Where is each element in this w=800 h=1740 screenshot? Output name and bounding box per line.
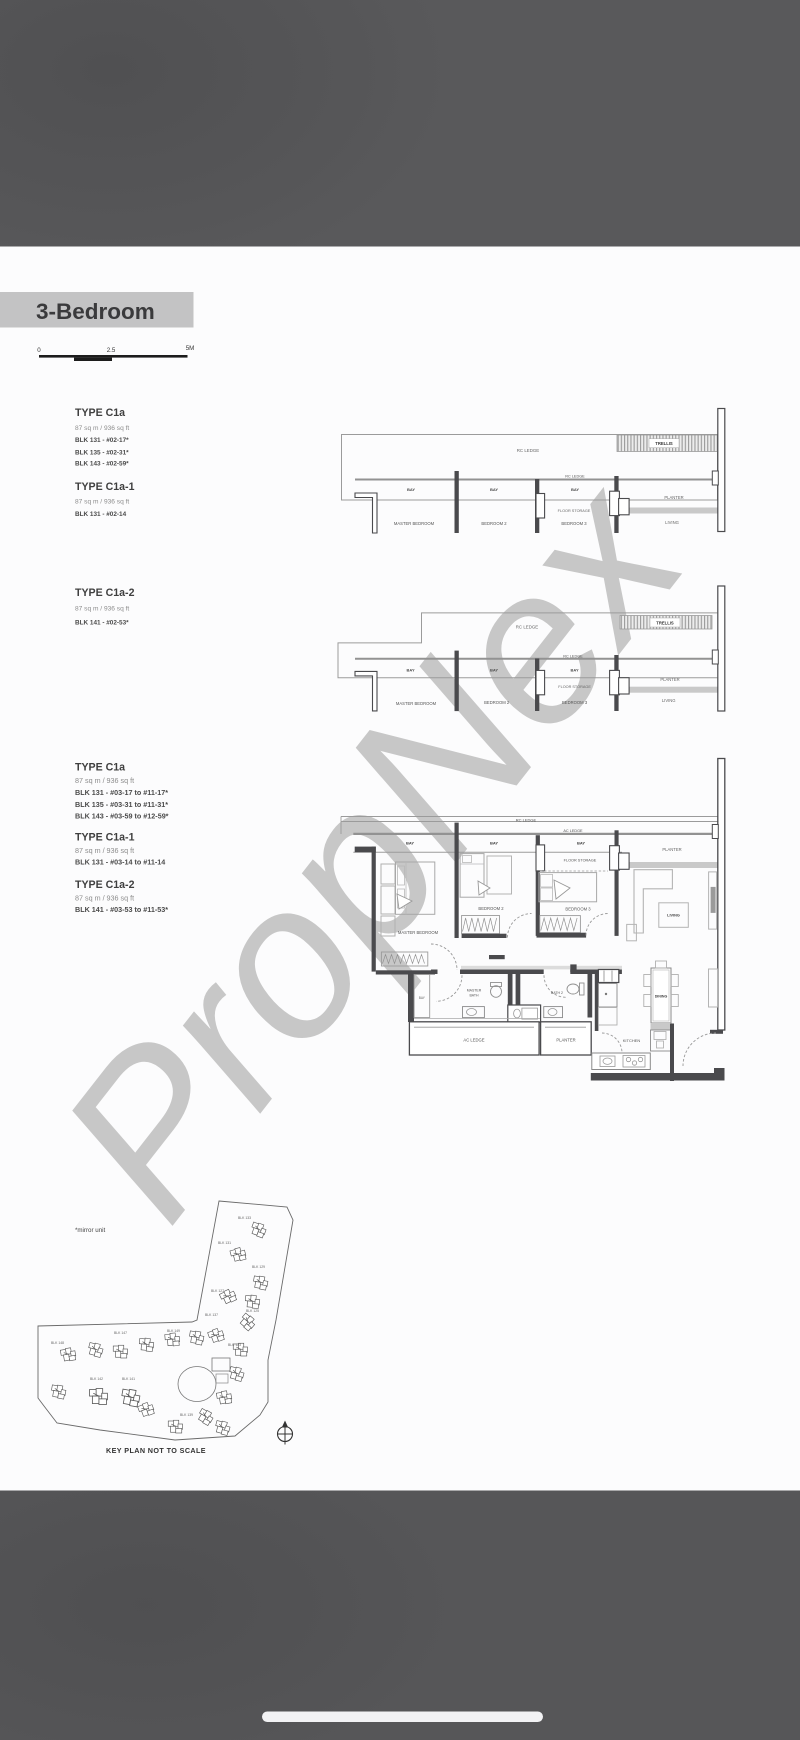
svg-text:FLOOR STORAGE: FLOOR STORAGE — [558, 685, 591, 689]
svg-text:BLK 147: BLK 147 — [114, 1331, 127, 1335]
svg-text:PLANTER: PLANTER — [664, 495, 683, 500]
svg-text:AC LEDGE: AC LEDGE — [463, 1038, 484, 1043]
svg-text:BLK 143 - #03-59 to #12-59*: BLK 143 - #03-59 to #12-59* — [75, 812, 169, 821]
svg-text:BEDROOM 3: BEDROOM 3 — [562, 700, 588, 705]
svg-text:TYPE C1a: TYPE C1a — [75, 762, 125, 774]
svg-text:BLK 131: BLK 131 — [218, 1241, 231, 1245]
svg-text:TYPE C1a-2: TYPE C1a-2 — [75, 879, 135, 891]
svg-text:BLK 141 - #03-53 to #11-53*: BLK 141 - #03-53 to #11-53* — [75, 905, 168, 914]
svg-text:RC LEDGE: RC LEDGE — [516, 817, 537, 822]
svg-text:BLK 142: BLK 142 — [90, 1377, 103, 1381]
svg-text:TRELLIS: TRELLIS — [655, 441, 673, 446]
svg-text:PLANTER: PLANTER — [662, 847, 681, 852]
svg-text:LIVING: LIVING — [665, 520, 679, 525]
svg-text:BLK 139: BLK 139 — [180, 1413, 193, 1417]
svg-text:*mirror unit: *mirror unit — [75, 1227, 106, 1234]
svg-text:BAY: BAY — [490, 487, 498, 492]
svg-text:BLK 148: BLK 148 — [51, 1341, 64, 1345]
svg-text:BLK 135 - #03-31 to #11-31*: BLK 135 - #03-31 to #11-31* — [75, 800, 168, 809]
svg-text:BATH 2: BATH 2 — [551, 991, 563, 995]
svg-text:FLOOR STORAGE: FLOOR STORAGE — [558, 509, 591, 513]
svg-text:87 sq m / 936 sq ft: 87 sq m / 936 sq ft — [75, 893, 134, 902]
svg-text:BLK 131 - #02-17*: BLK 131 - #02-17* — [75, 437, 129, 444]
svg-text:BEDROOM 2: BEDROOM 2 — [478, 906, 504, 911]
svg-text:BAY: BAY — [406, 840, 414, 845]
svg-text:87 sq m / 936 sq ft: 87 sq m / 936 sq ft — [75, 499, 129, 506]
svg-text:BAY: BAY — [490, 840, 498, 845]
svg-text:BEDROOM 2: BEDROOM 2 — [481, 521, 507, 526]
svg-text:BLK 127: BLK 127 — [211, 1289, 224, 1293]
svg-text:BAY: BAY — [571, 668, 579, 673]
svg-text:BLK 143 - #02-59*: BLK 143 - #02-59* — [75, 461, 129, 468]
svg-text:MASTER BEDROOM: MASTER BEDROOM — [396, 701, 437, 706]
svg-text:BLK 141 - #02-53*: BLK 141 - #02-53* — [75, 619, 129, 626]
svg-text:AC LEDGE: AC LEDGE — [563, 829, 583, 833]
svg-text:BEDROOM 3: BEDROOM 3 — [561, 521, 587, 526]
svg-text:TRELLIS: TRELLIS — [656, 621, 674, 626]
svg-text:TYPE C1a-1: TYPE C1a-1 — [75, 481, 135, 493]
svg-text:BEDROOM 3: BEDROOM 3 — [565, 907, 591, 912]
svg-text:MASTER BEDROOM: MASTER BEDROOM — [398, 930, 439, 935]
svg-text:TYPE C1a: TYPE C1a — [75, 407, 125, 419]
svg-text:LIVING: LIVING — [662, 698, 676, 703]
svg-text:BLK 131 - #03-14 to #11-14: BLK 131 - #03-14 to #11-14 — [75, 858, 165, 867]
svg-text:BAY: BAY — [490, 668, 498, 673]
svg-text:FLOOR STORAGE: FLOOR STORAGE — [564, 859, 597, 863]
svg-text:0: 0 — [37, 347, 41, 354]
svg-text:BLK 129: BLK 129 — [252, 1265, 265, 1269]
svg-text:3-Bedroom: 3-Bedroom — [36, 299, 155, 324]
svg-text:87 sq m / 936 sq ft: 87 sq m / 936 sq ft — [75, 606, 129, 613]
svg-text:BAY: BAY — [571, 487, 579, 492]
svg-text:MASTER BEDROOM: MASTER BEDROOM — [394, 521, 435, 526]
svg-text:PLANTER: PLANTER — [556, 1038, 575, 1043]
svg-text:BLK 123: BLK 123 — [228, 1343, 241, 1347]
svg-text:PLANTER: PLANTER — [660, 677, 679, 682]
svg-text:TYPE C1a-1: TYPE C1a-1 — [75, 832, 135, 844]
svg-text:BLK 135 - #02-31*: BLK 135 - #02-31* — [75, 449, 129, 456]
svg-text:87 sq m / 936 sq ft: 87 sq m / 936 sq ft — [75, 425, 129, 432]
svg-text:87 sq m / 936 sq ft: 87 sq m / 936 sq ft — [75, 846, 134, 855]
svg-text:RC LEDGE: RC LEDGE — [516, 625, 539, 630]
svg-text:RC LEDGE: RC LEDGE — [565, 475, 585, 479]
svg-text:5M: 5M — [186, 345, 195, 352]
svg-text:BATH: BATH — [469, 994, 479, 998]
svg-text:BLK 131 - #03-17 to #11-17*: BLK 131 - #03-17 to #11-17* — [75, 788, 168, 797]
svg-text:BLK 125: BLK 125 — [246, 1309, 259, 1313]
svg-text:KEY PLAN NOT TO SCALE: KEY PLAN NOT TO SCALE — [106, 1446, 206, 1455]
svg-text:2.5: 2.5 — [107, 347, 116, 354]
svg-text:LIVING: LIVING — [667, 914, 680, 918]
svg-text:BAY: BAY — [419, 996, 426, 1000]
svg-text:BLK 149: BLK 149 — [167, 1329, 180, 1333]
svg-text:BLK 133: BLK 133 — [238, 1216, 251, 1220]
svg-text:BEDROOM 2: BEDROOM 2 — [484, 700, 510, 705]
svg-text:BLK 141: BLK 141 — [122, 1377, 135, 1381]
svg-text:BLK 131 - #02-14: BLK 131 - #02-14 — [75, 511, 127, 518]
svg-text:KITCHEN: KITCHEN — [623, 1038, 641, 1043]
svg-text:87 sq m / 936 sq ft: 87 sq m / 936 sq ft — [75, 776, 134, 785]
svg-text:BAY: BAY — [407, 668, 415, 673]
svg-text:BLK 137: BLK 137 — [205, 1313, 218, 1317]
svg-text:MASTER: MASTER — [467, 989, 482, 993]
svg-text:BAY: BAY — [577, 840, 585, 845]
svg-text:BAY: BAY — [407, 487, 415, 492]
svg-text:TYPE C1a-2: TYPE C1a-2 — [75, 587, 135, 599]
svg-text:DINING: DINING — [655, 995, 668, 999]
svg-text:RC LEDGE: RC LEDGE — [517, 448, 540, 453]
